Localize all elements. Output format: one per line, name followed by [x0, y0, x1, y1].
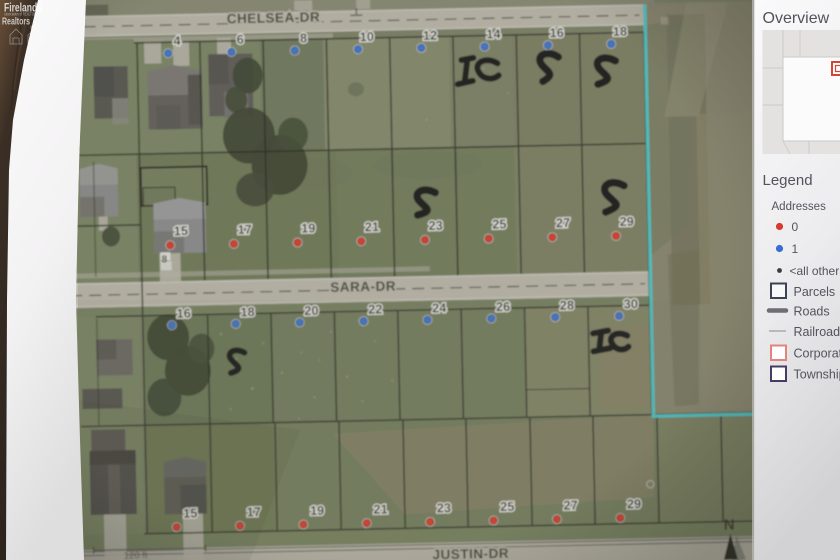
svg-text:Addresses: Addresses [772, 201, 827, 213]
svg-text:Realtors: Realtors [2, 16, 30, 28]
svg-text:Parcels: Parcels [794, 285, 836, 299]
svg-text:0: 0 [792, 220, 799, 234]
svg-text:<all other va: <all other va [790, 264, 840, 278]
svg-text:1: 1 [792, 242, 799, 256]
svg-text:Townships: Townships [794, 368, 840, 382]
svg-text:Railroads: Railroads [794, 325, 840, 339]
svg-text:Legend: Legend [763, 172, 813, 189]
svg-text:Corporate L: Corporate L [794, 347, 840, 361]
svg-text:Overview: Overview [763, 10, 830, 27]
svg-text:Roads: Roads [794, 305, 830, 319]
